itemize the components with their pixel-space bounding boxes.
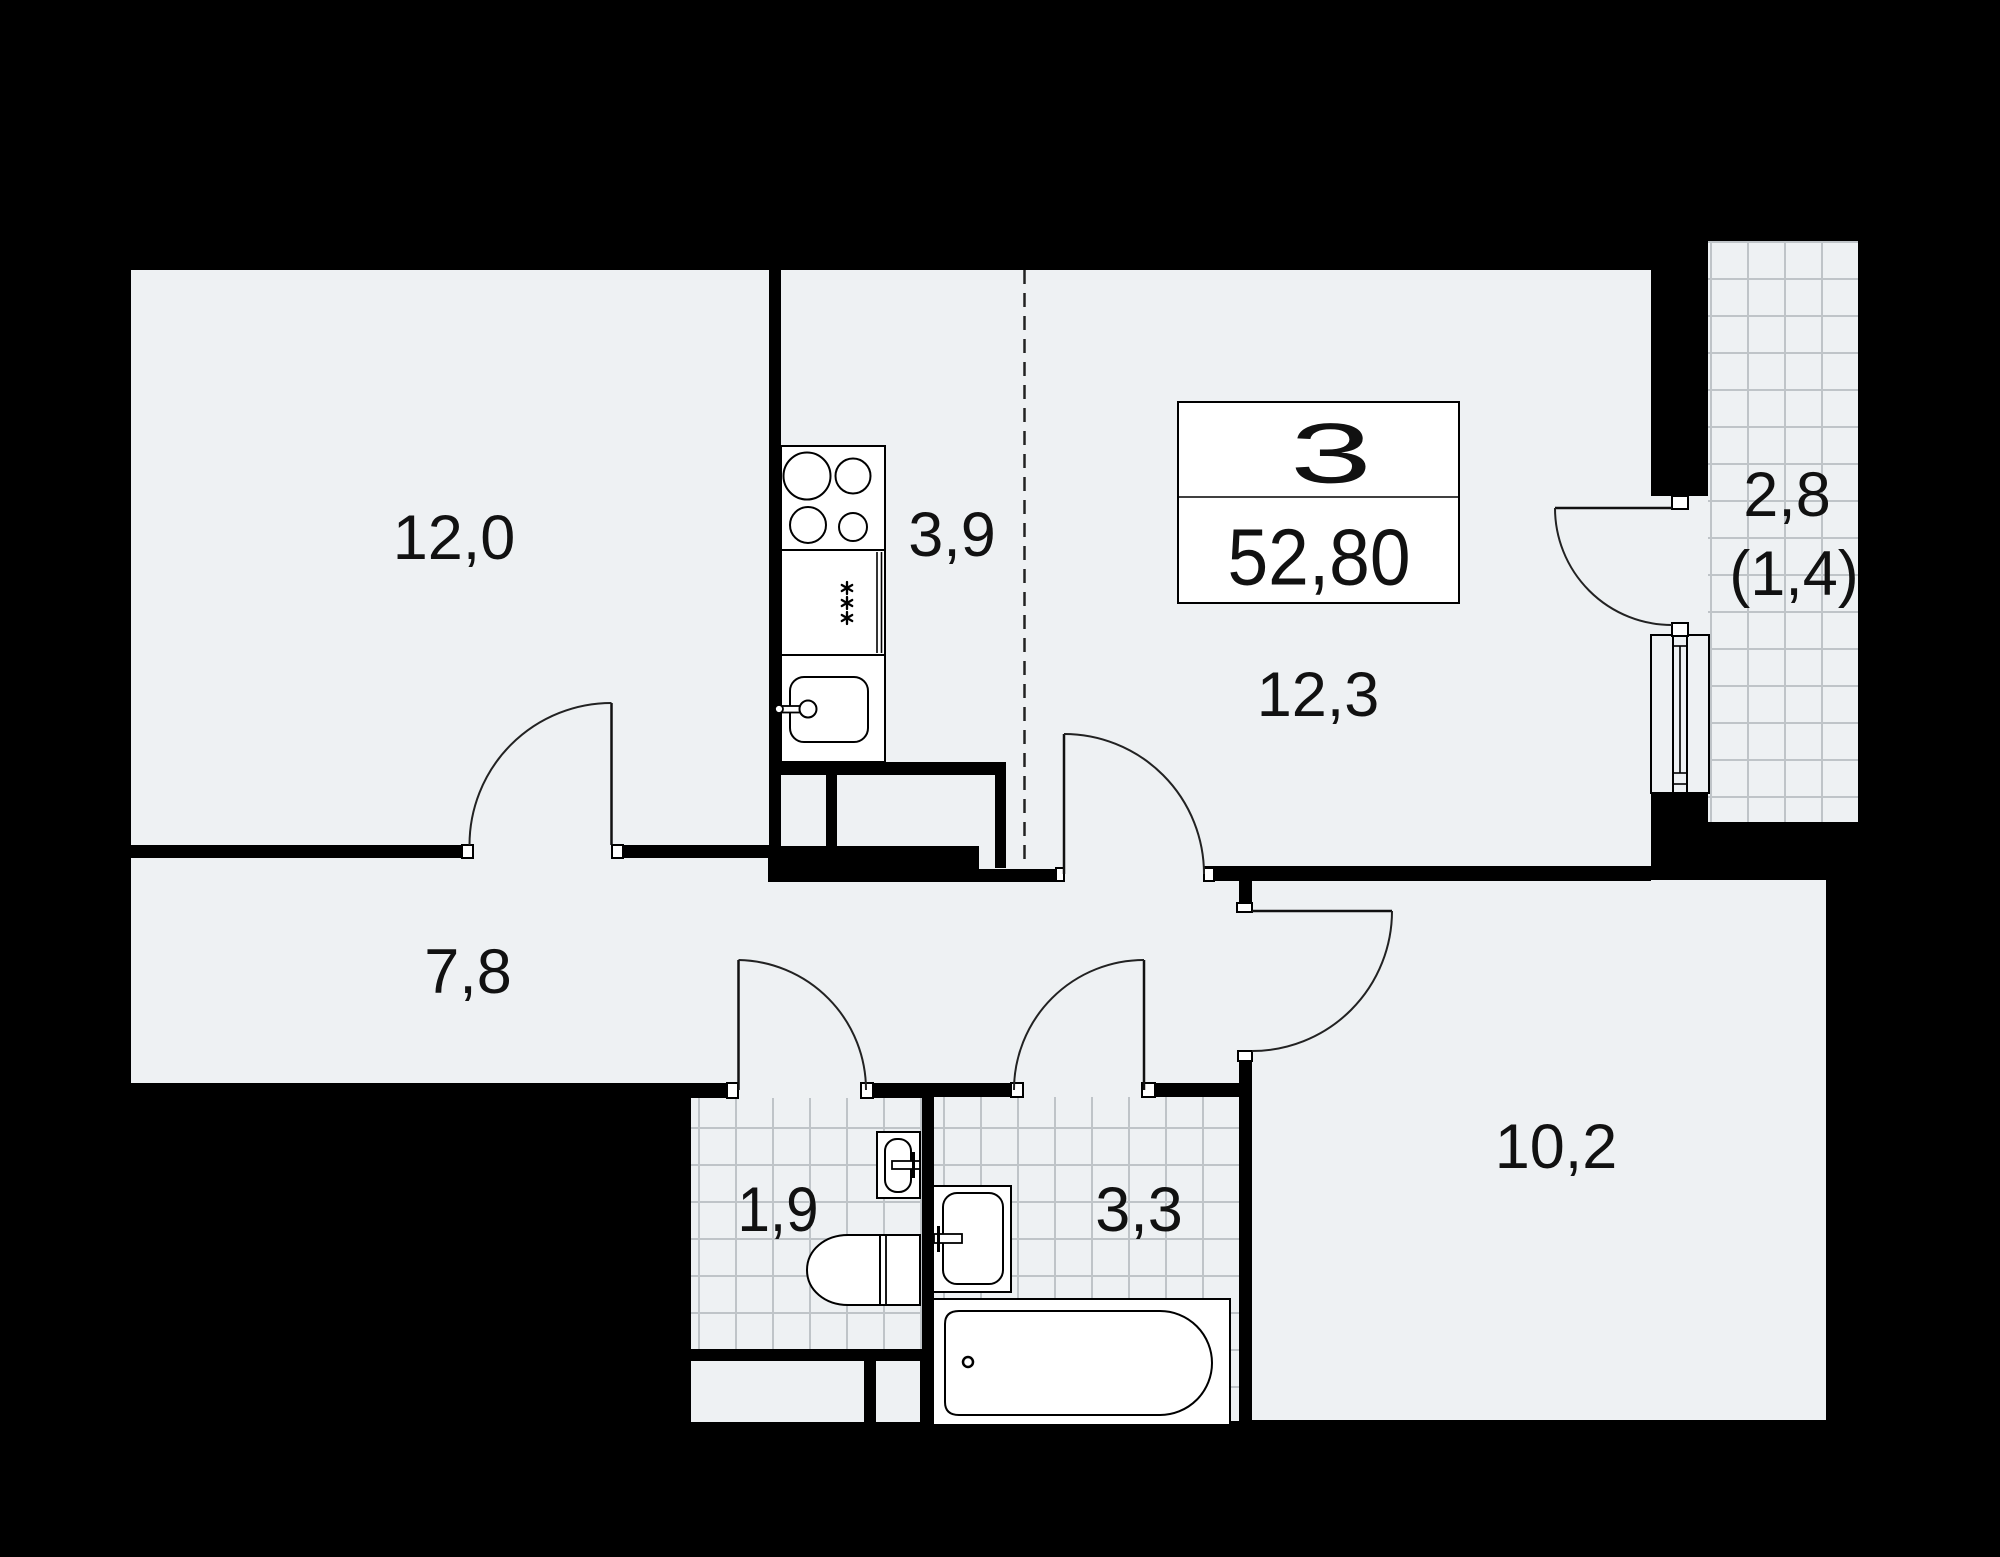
svg-text:3: 3 [1290, 407, 1372, 502]
svg-text:7,8: 7,8 [424, 937, 512, 1007]
svg-text:10,2: 10,2 [1495, 1112, 1618, 1182]
svg-text:1,9: 1,9 [738, 1175, 819, 1245]
svg-text:3,3: 3,3 [1095, 1175, 1183, 1245]
svg-text:12,0: 12,0 [393, 503, 516, 573]
svg-text:2,8: 2,8 [1743, 460, 1831, 530]
svg-text:(1,4): (1,4) [1729, 539, 1859, 609]
svg-text:3,9: 3,9 [908, 500, 996, 570]
svg-text:52,80: 52,80 [1228, 513, 1411, 602]
svg-text:12,3: 12,3 [1257, 660, 1380, 730]
